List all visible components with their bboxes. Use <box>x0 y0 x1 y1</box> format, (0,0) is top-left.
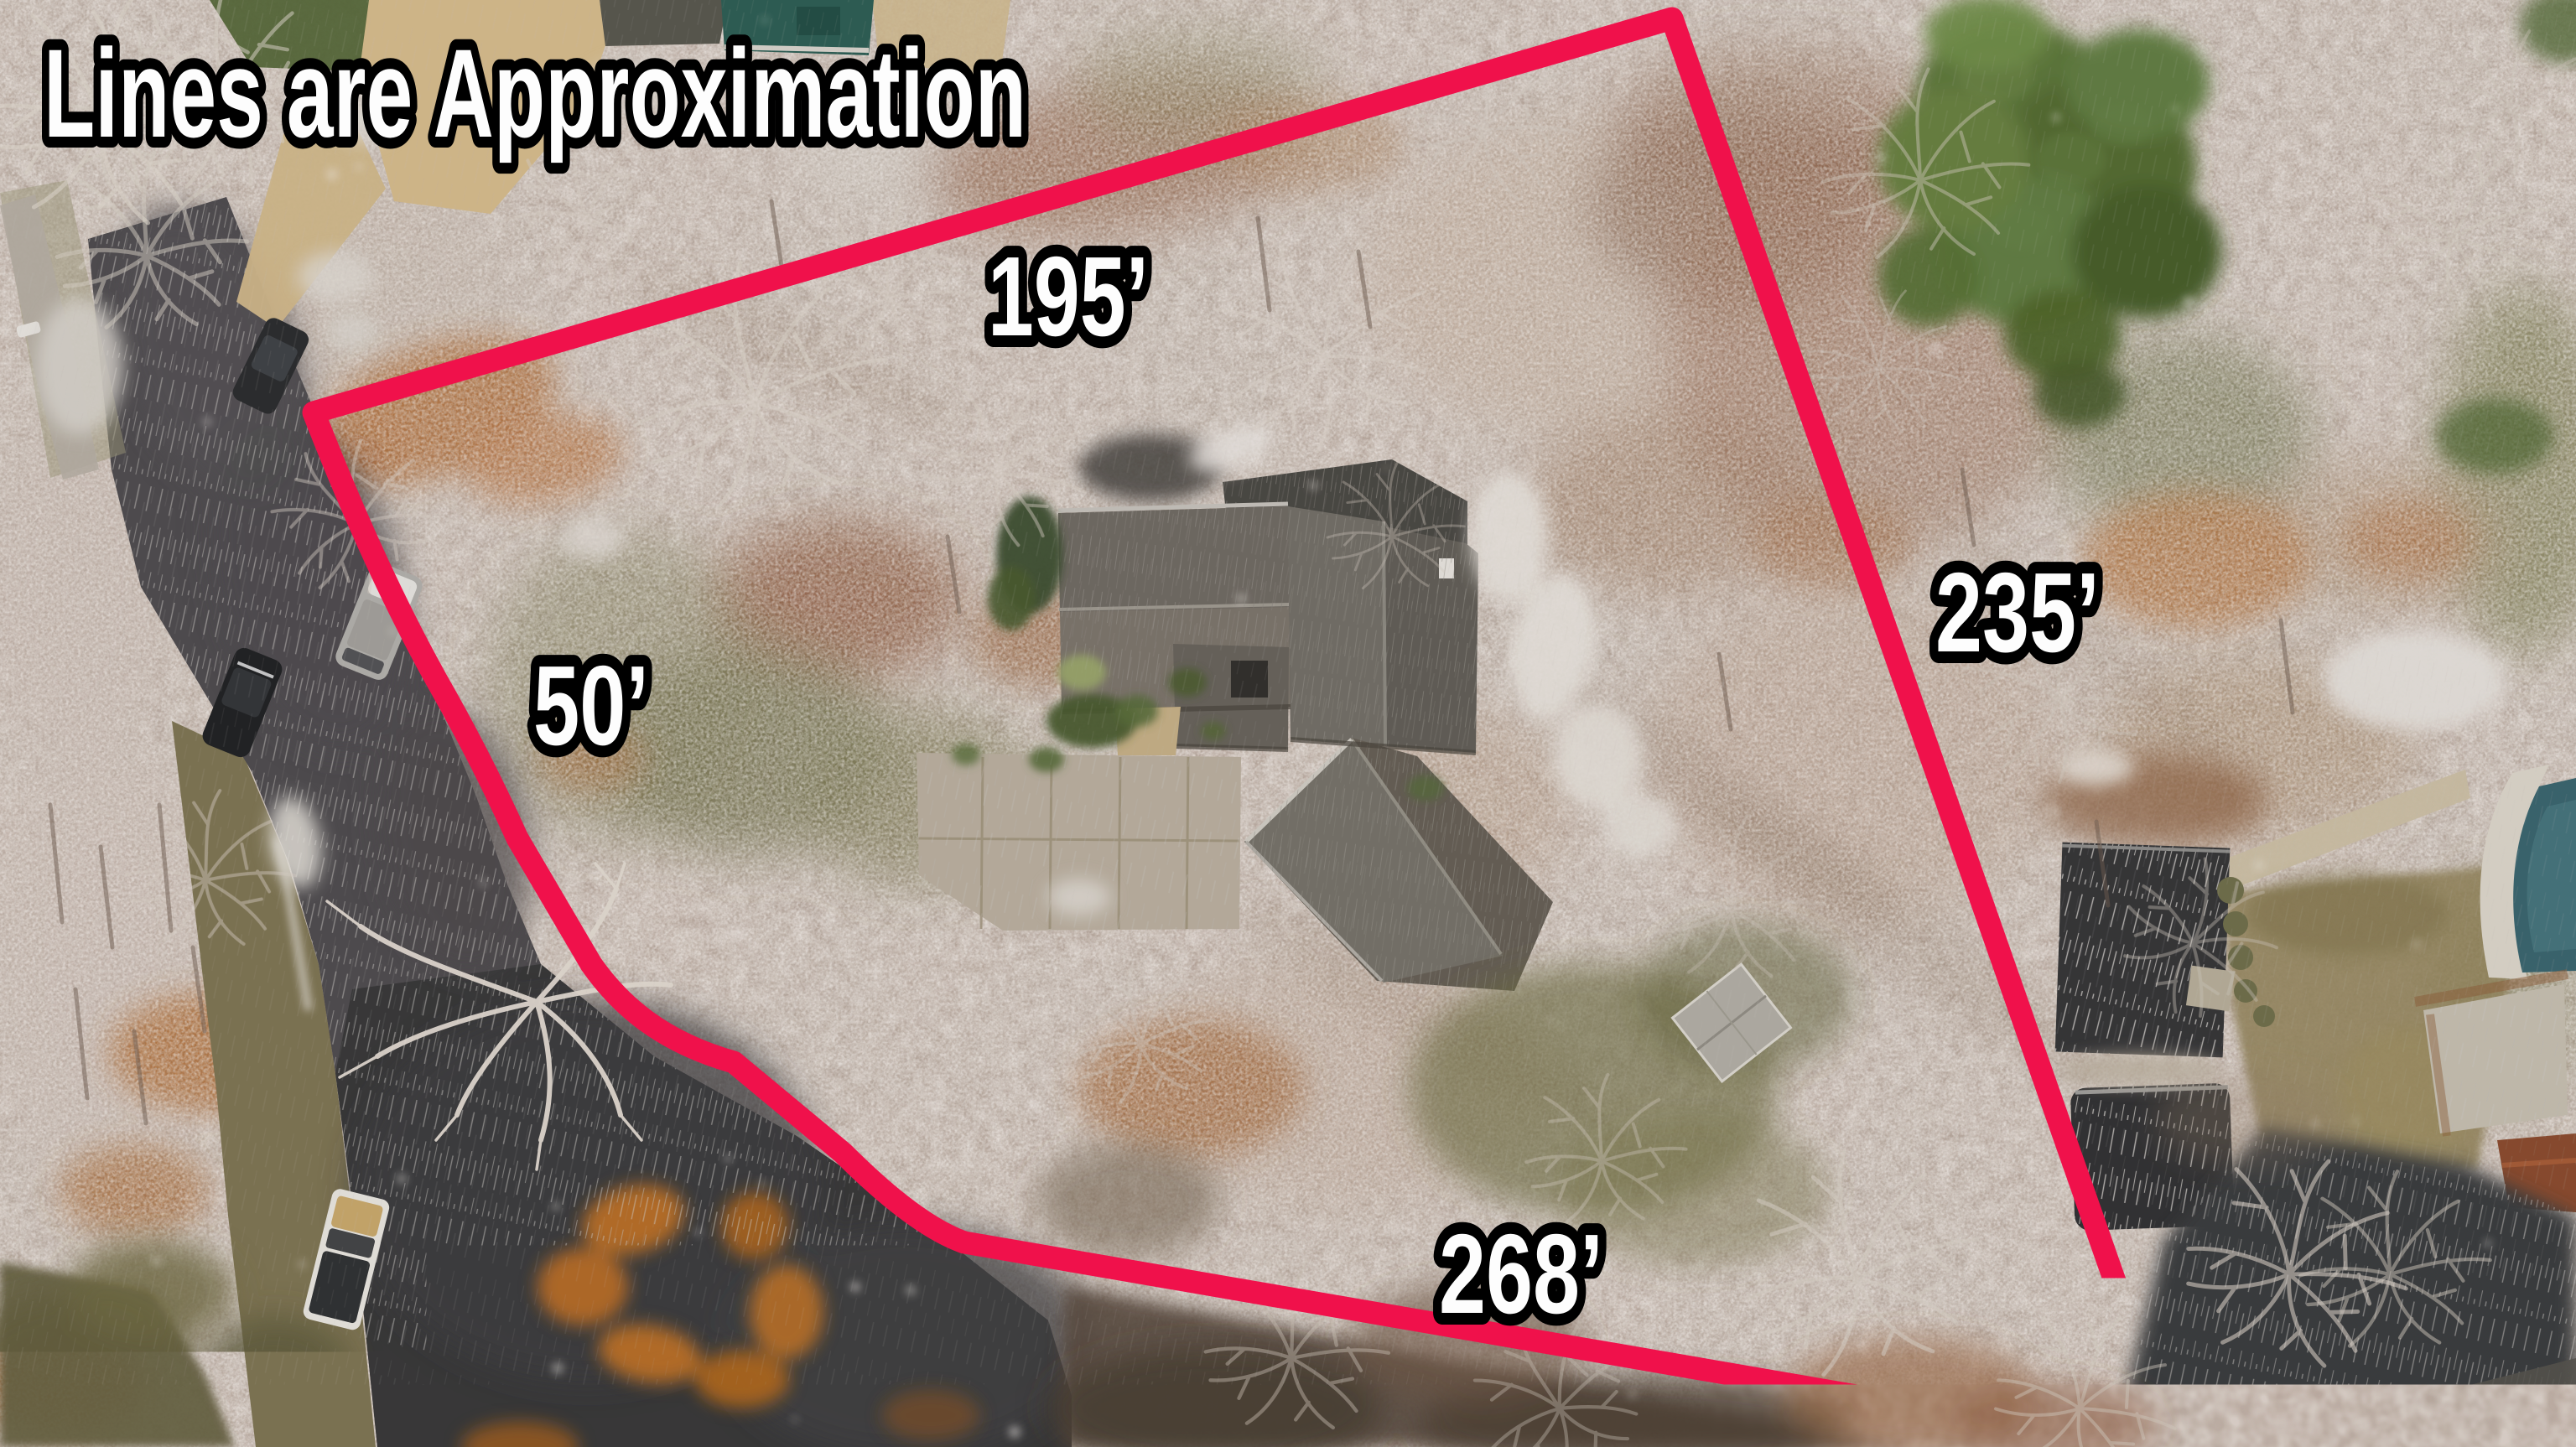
svg-text:235’: 235’ <box>1935 549 2100 676</box>
svg-text:268’: 268’ <box>1439 1211 1603 1337</box>
svg-text:Lines are Approximation: Lines are Approximation <box>44 23 1026 163</box>
svg-text:195’: 195’ <box>988 233 1149 360</box>
svg-text:50’: 50’ <box>533 642 649 769</box>
